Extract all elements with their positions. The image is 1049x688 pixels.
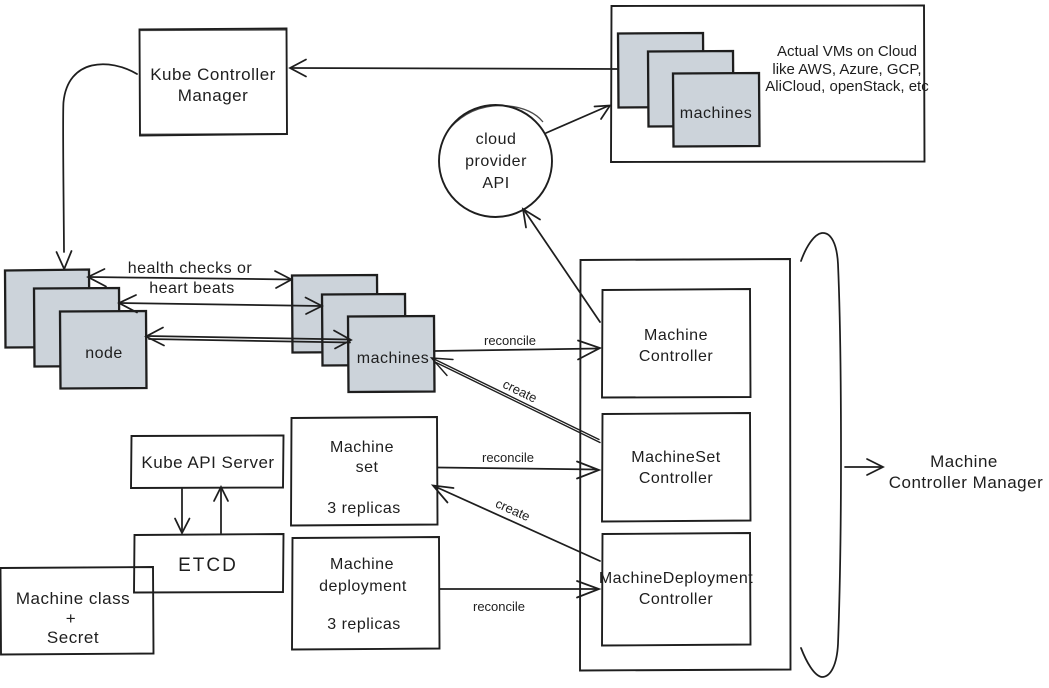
svg-text:API: API: [482, 175, 509, 192]
svg-text:Controller: Controller: [639, 470, 714, 487]
svg-text:+: +: [66, 609, 76, 628]
svg-text:MachineDeployment: MachineDeployment: [599, 570, 753, 587]
svg-text:Machine: Machine: [644, 327, 708, 344]
svg-text:machines: machines: [680, 105, 752, 122]
svg-text:reconcile: reconcile: [484, 333, 536, 348]
svg-text:Secret: Secret: [47, 628, 99, 647]
svg-text:Machine: Machine: [330, 556, 394, 573]
svg-text:Kube Controller: Kube Controller: [150, 65, 276, 84]
svg-text:Kube API Server: Kube API Server: [141, 453, 274, 472]
svg-text:cloud: cloud: [476, 131, 517, 148]
svg-text:3 replicas: 3 replicas: [327, 500, 400, 517]
svg-text:Machine: Machine: [930, 452, 998, 471]
svg-text:like AWS, Azure, GCP,: like AWS, Azure, GCP,: [772, 61, 921, 78]
svg-text:set: set: [356, 459, 379, 476]
svg-text:reconcile: reconcile: [473, 599, 525, 614]
svg-text:Controller Manager: Controller Manager: [889, 473, 1044, 492]
svg-text:ETCD: ETCD: [178, 555, 238, 576]
svg-text:heart beats: heart beats: [149, 280, 235, 297]
svg-text:MachineSet: MachineSet: [631, 449, 721, 466]
svg-text:Controller: Controller: [639, 348, 714, 365]
svg-text:Machine class: Machine class: [16, 589, 130, 608]
svg-text:reconcile: reconcile: [482, 450, 534, 465]
svg-text:provider: provider: [465, 153, 527, 170]
svg-text:3 replicas: 3 replicas: [327, 616, 400, 633]
svg-text:machines: machines: [357, 350, 429, 367]
svg-text:deployment: deployment: [319, 578, 407, 595]
svg-text:health checks or: health checks or: [128, 260, 253, 277]
svg-text:Controller: Controller: [639, 591, 714, 608]
svg-text:node: node: [85, 345, 123, 362]
svg-text:AliCloud, openStack, etc: AliCloud, openStack, etc: [765, 78, 929, 95]
svg-text:Actual VMs on Cloud: Actual VMs on Cloud: [777, 43, 917, 60]
svg-text:Manager: Manager: [178, 86, 249, 105]
svg-text:Machine: Machine: [330, 439, 394, 456]
